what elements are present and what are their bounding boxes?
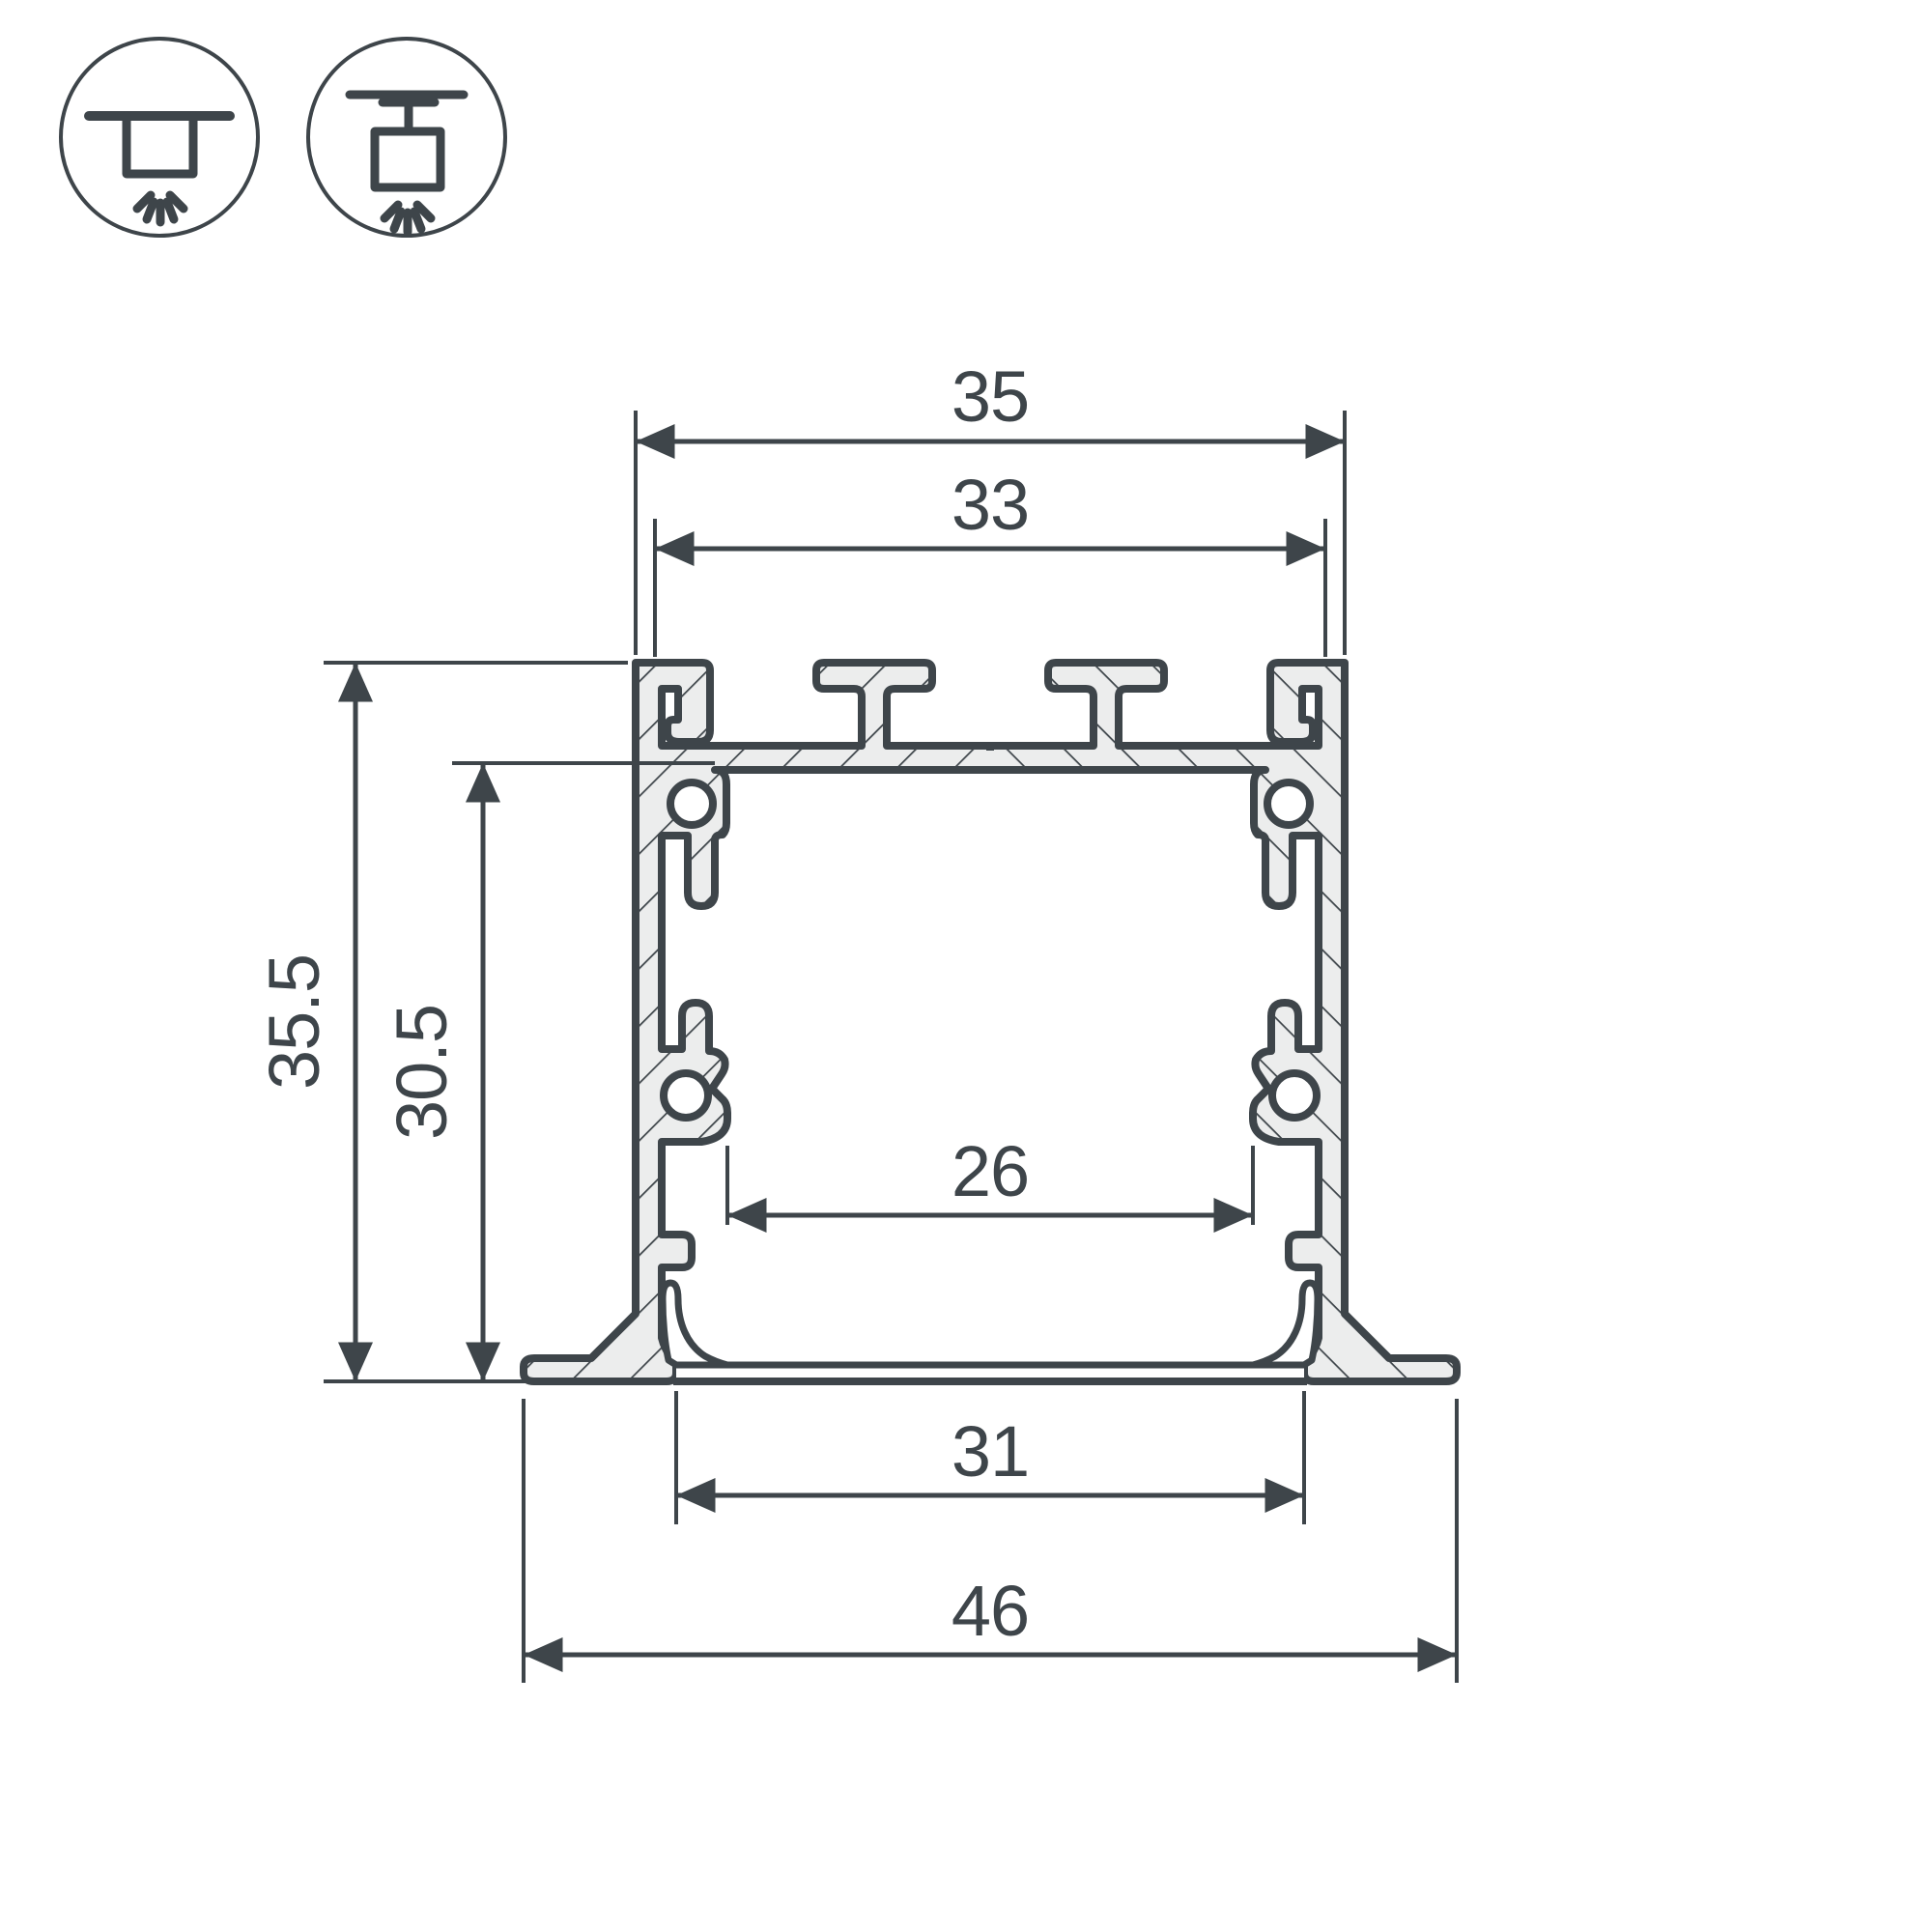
dimension-top-inner-width: 33: [655, 465, 1325, 657]
leaf-spring-left: [663, 1283, 727, 1365]
icon-circle: [308, 39, 505, 236]
suspended-mount-icon: [308, 39, 505, 236]
dim-label-outer-height: 35.5: [254, 954, 334, 1090]
dim-label-top-inner-width: 33: [952, 465, 1029, 545]
bottom-plate: [673, 1365, 1307, 1381]
leaf-spring-right: [1253, 1283, 1318, 1365]
profile-cross-section: [524, 663, 1457, 1381]
dim-label-cavity-width: 26: [952, 1131, 1029, 1211]
dimension-cavity-width: 26: [727, 1131, 1253, 1215]
seam-patch: [983, 751, 997, 766]
dim-label-flange-width: 46: [952, 1571, 1029, 1651]
dim-label-outer-width: 35: [952, 356, 1029, 437]
dim-label-inner-height: 30.5: [382, 1005, 462, 1140]
profile-drawing-canvas: 35 33 35.5 30.5 26: [0, 0, 1932, 1932]
dim-label-bottom-inner-width: 31: [952, 1411, 1029, 1492]
technical-drawing-page: 35 33 35.5 30.5 26: [0, 0, 1932, 1932]
dimension-bottom-inner-width: 31: [676, 1391, 1304, 1524]
light-rays: [384, 205, 431, 232]
recessed-mount-icon: [61, 39, 258, 236]
light-rays: [137, 195, 184, 222]
